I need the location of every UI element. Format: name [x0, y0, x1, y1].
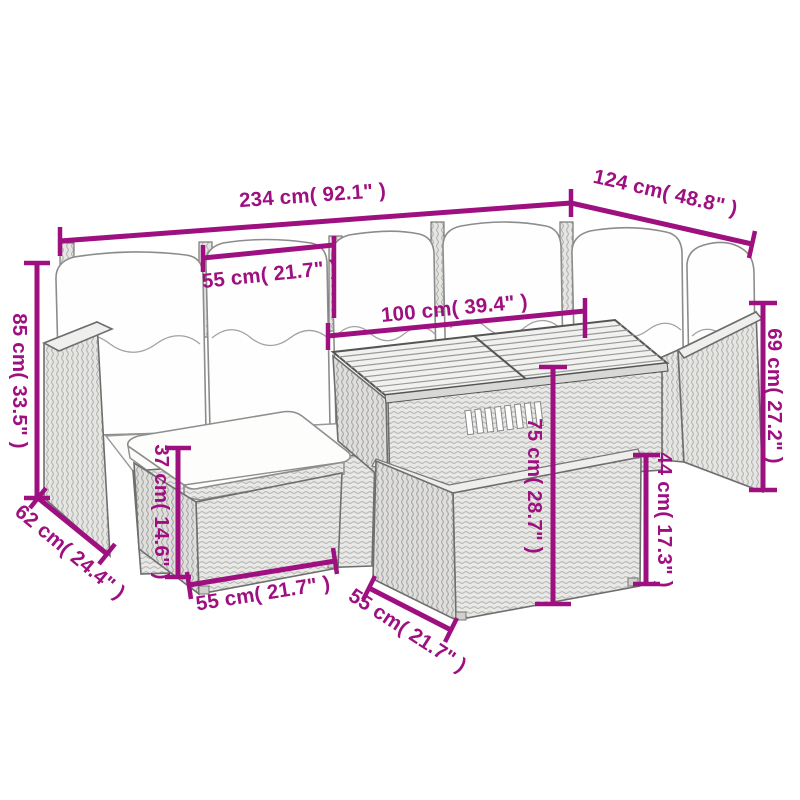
dim-label-armrest-height: 69 cm( 27.2" )	[763, 328, 786, 464]
product-dimension-diagram: 234 cm( 92.1" ) 124 cm( 48.8" ) 55 cm( 2…	[0, 0, 800, 800]
dim-label-table-height: 75 cm( 28.7" )	[523, 418, 546, 554]
dimension-diagram-svg: 234 cm( 92.1" ) 124 cm( 48.8" ) 55 cm( 2…	[0, 0, 800, 800]
dim-label-back-height: 85 cm( 33.5" )	[8, 313, 31, 449]
dim-label-ottoman-height: 37 cm( 14.6" )	[150, 444, 173, 580]
dim-label-bench-height: 44 cm( 17.3" )	[653, 452, 676, 588]
dim-label-overall-width: 234 cm( 92.1" )	[238, 179, 386, 212]
bench-ottoman	[372, 449, 641, 620]
